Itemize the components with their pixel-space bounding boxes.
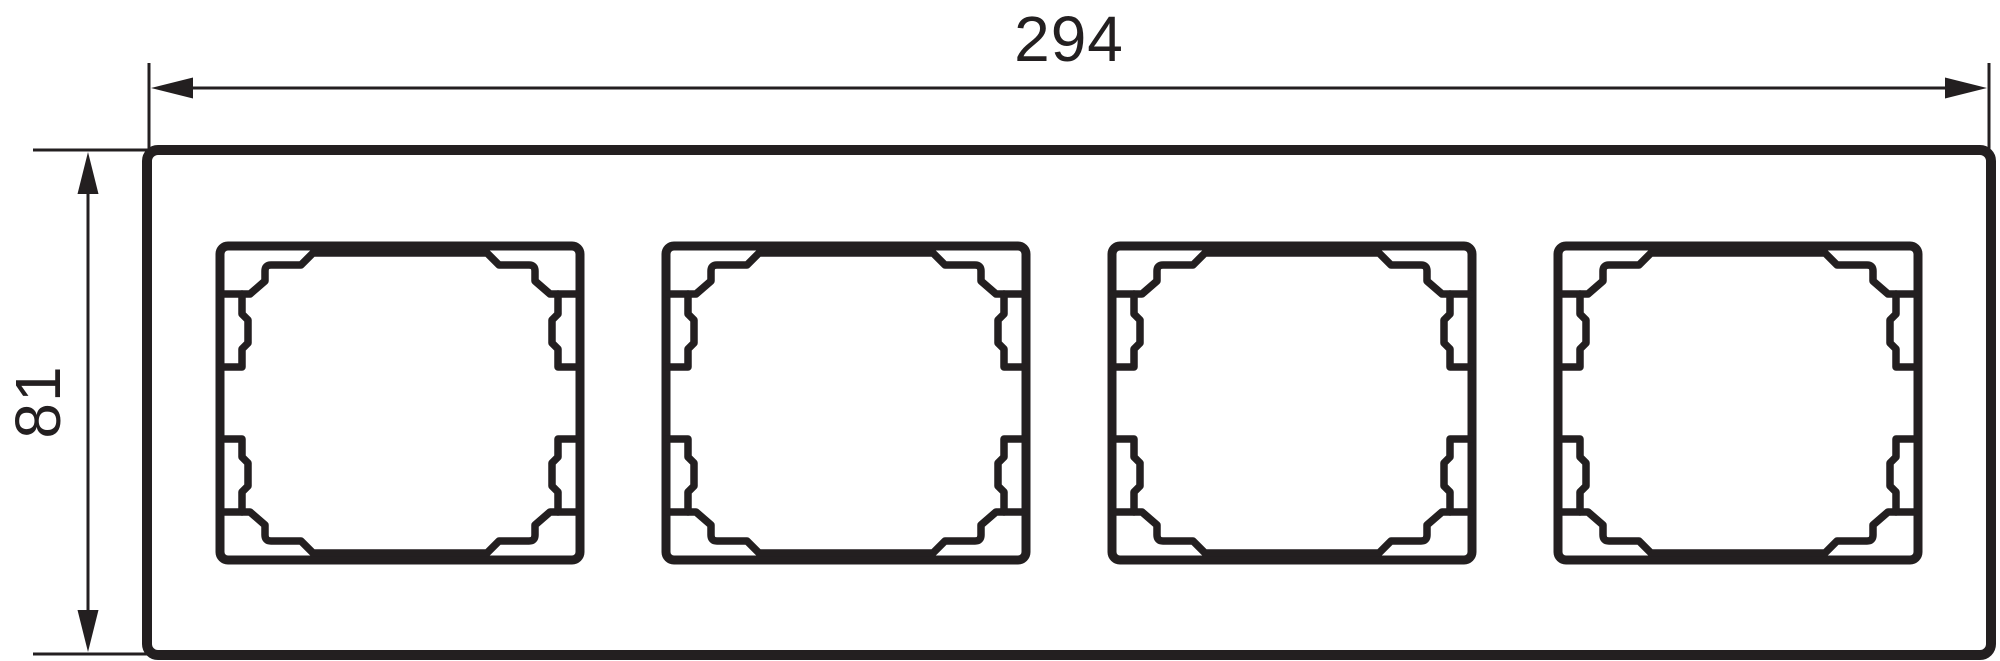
module-opening-4 [1558, 246, 1918, 560]
arrow-down-icon [78, 610, 99, 652]
module-opening-2 [666, 246, 1026, 560]
technical-drawing: 294 81 [0, 0, 2000, 661]
openings-layer [220, 246, 1918, 560]
arrow-left-icon [151, 78, 193, 99]
height-dimension-value: 81 [2, 365, 74, 438]
arrow-right-icon [1945, 78, 1987, 99]
frame-plate-outline [147, 150, 1991, 655]
width-dimension: 294 [149, 3, 1989, 152]
height-dimension: 81 [2, 150, 150, 654]
module-opening-1 [220, 246, 580, 560]
module-opening-3 [1112, 246, 1472, 560]
width-dimension-value: 294 [1014, 3, 1124, 75]
drawing-canvas: 294 81 [0, 0, 2000, 661]
arrow-up-icon [78, 152, 99, 194]
